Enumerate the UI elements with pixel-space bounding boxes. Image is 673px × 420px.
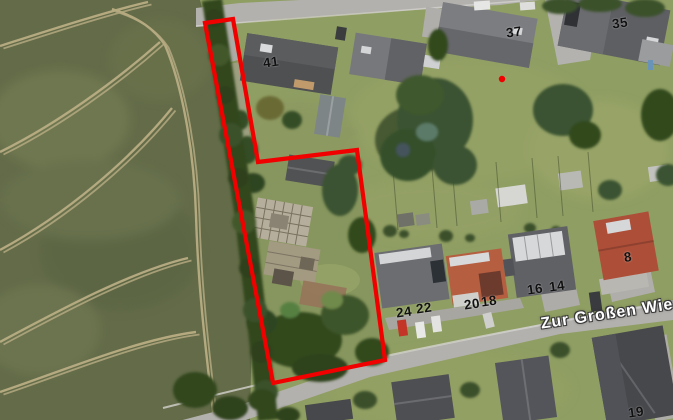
house-number-22: 22: [415, 299, 433, 316]
dark-car-41: [335, 26, 347, 40]
house-number-19: 19: [627, 403, 645, 420]
house-number-24: 24: [395, 303, 413, 320]
white-car-road-2: [520, 1, 536, 10]
house-partial-3: [495, 356, 557, 420]
house-number-20: 20: [463, 295, 481, 312]
aerial-map-canvas[interactable]: 41 37 35 8 24 22 20 18 16 14 19 Zur Groß…: [0, 0, 673, 420]
house-number-37: 37: [505, 23, 523, 40]
house-8-roof: [593, 211, 659, 280]
aerial-imagery: [0, 0, 673, 420]
red-marker-dot: [499, 76, 505, 82]
house-number-18: 18: [480, 292, 498, 309]
house-number-14: 14: [548, 277, 566, 294]
house-number-35: 35: [611, 14, 629, 31]
blue-garden-item: [648, 60, 653, 70]
house-24-22-roof: [374, 244, 449, 309]
white-car-road-1: [474, 0, 491, 10]
house-number-41: 41: [262, 53, 280, 70]
house-partial-2: [391, 374, 455, 420]
house-number-16: 16: [526, 280, 544, 297]
